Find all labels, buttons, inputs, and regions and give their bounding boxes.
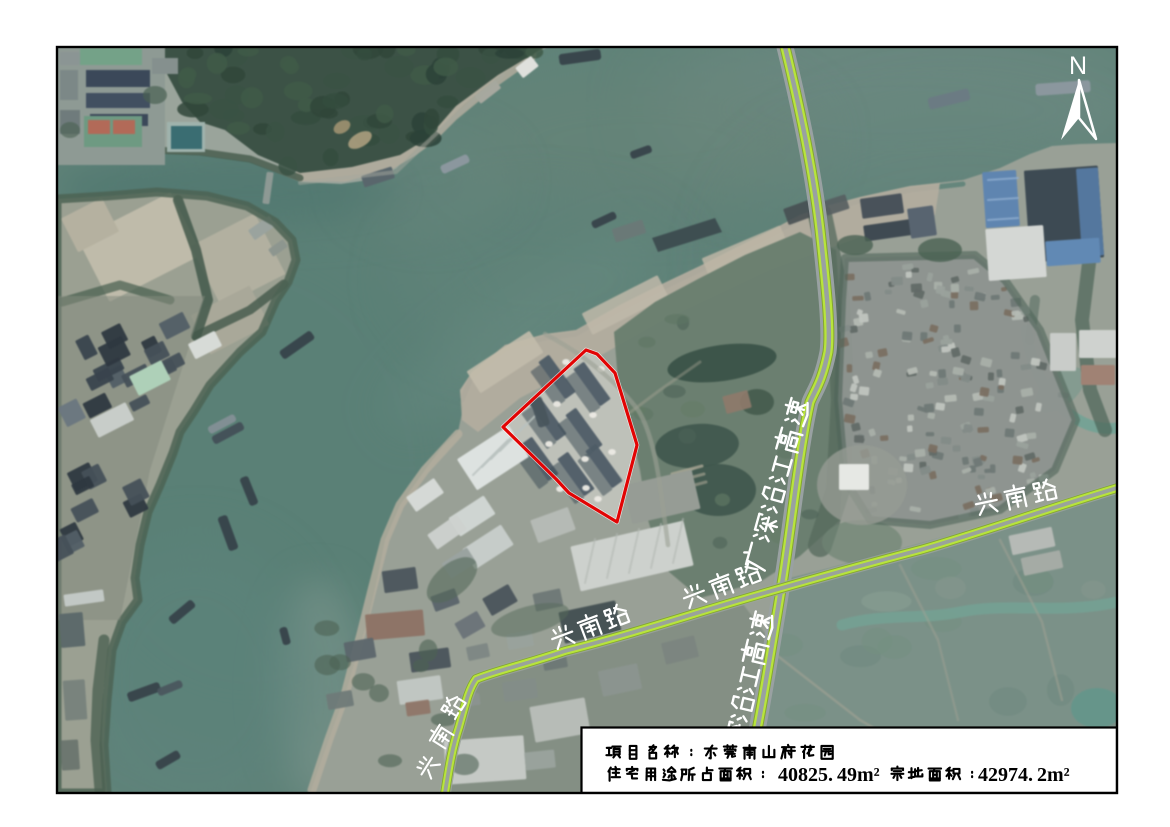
svg-text:42974. 2m²: 42974. 2m² [978, 764, 1070, 786]
svg-text:N: N [1069, 52, 1087, 80]
svg-text:40825. 49m²: 40825. 49m² [778, 764, 880, 786]
